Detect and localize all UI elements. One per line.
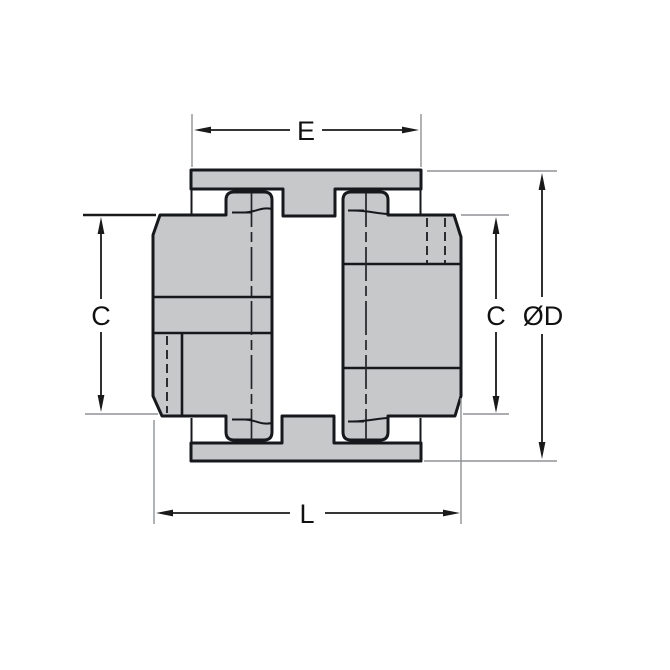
label-e: E bbox=[297, 116, 315, 146]
dim-l-arrow-right bbox=[443, 510, 460, 517]
dim-c-right-arrow-up bbox=[493, 217, 500, 234]
label-c-right: C bbox=[486, 301, 506, 331]
right-hub-body bbox=[343, 192, 461, 440]
dim-c-left-arrow-up bbox=[98, 217, 105, 234]
label-od: ØD bbox=[523, 301, 564, 331]
label-l: L bbox=[299, 499, 314, 529]
drawing-canvas: E C C ØD L bbox=[0, 0, 670, 670]
dim-od-arrow-up bbox=[539, 173, 546, 190]
dim-od-arrow-down bbox=[539, 442, 546, 459]
dim-c-right-arrow-down bbox=[493, 396, 500, 413]
coupling-drawing: E C C ØD L bbox=[0, 0, 670, 670]
label-c-left: C bbox=[91, 301, 111, 331]
dim-l-arrow-left bbox=[156, 510, 173, 517]
part-bodies bbox=[153, 170, 461, 461]
dim-e-arrow-right bbox=[402, 127, 419, 134]
left-hub-body bbox=[153, 192, 272, 440]
dim-e-arrow-left bbox=[194, 127, 211, 134]
dim-c-left-arrow-down bbox=[98, 395, 105, 412]
